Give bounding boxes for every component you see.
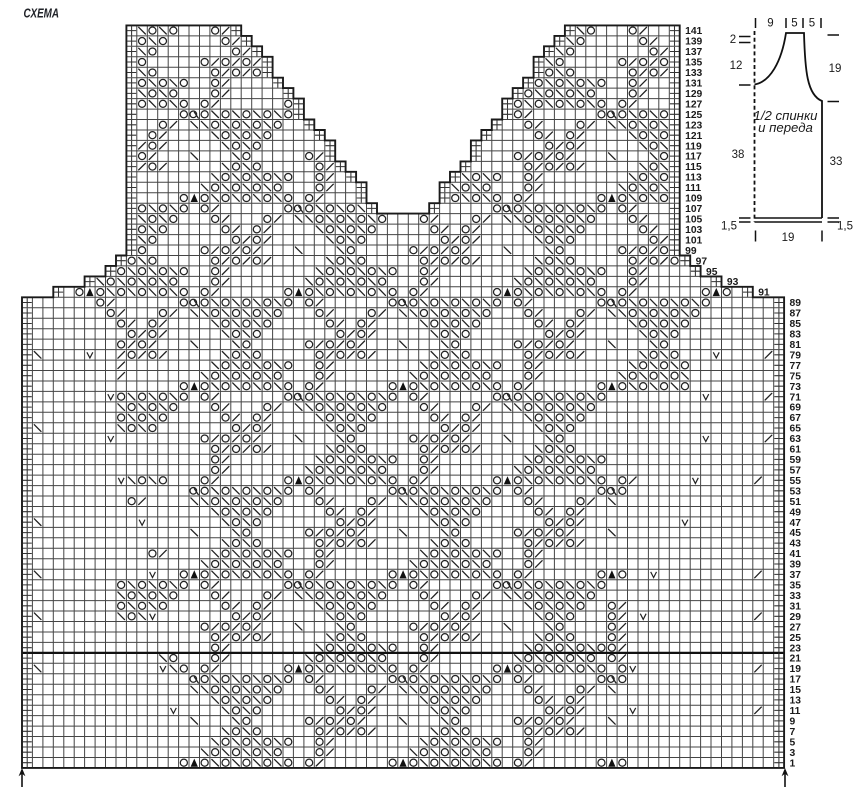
svg-text:99: 99 <box>685 246 697 257</box>
svg-text:79: 79 <box>790 350 802 361</box>
svg-text:75: 75 <box>790 371 802 382</box>
svg-text:38: 38 <box>732 149 745 161</box>
svg-text:85: 85 <box>790 319 802 330</box>
svg-text:109: 109 <box>685 194 702 205</box>
svg-text:35: 35 <box>790 581 802 592</box>
svg-text:23: 23 <box>790 643 802 654</box>
svg-text:63: 63 <box>790 434 802 445</box>
svg-text:131: 131 <box>685 79 702 90</box>
svg-text:19: 19 <box>790 664 802 675</box>
svg-text:73: 73 <box>790 382 802 393</box>
svg-text:113: 113 <box>685 173 702 184</box>
svg-text:137: 137 <box>685 47 702 58</box>
svg-text:21: 21 <box>790 654 802 665</box>
svg-text:71: 71 <box>790 392 802 403</box>
svg-text:12: 12 <box>730 60 743 72</box>
svg-text:61: 61 <box>790 445 802 456</box>
svg-text:15: 15 <box>790 685 802 696</box>
svg-text:83: 83 <box>790 330 802 341</box>
svg-text:105: 105 <box>685 215 702 226</box>
svg-text:65: 65 <box>790 424 802 435</box>
svg-text:123: 123 <box>685 120 702 131</box>
svg-text:87: 87 <box>790 309 802 320</box>
svg-text:СХЕМА: СХЕМА <box>24 6 60 20</box>
svg-text:37: 37 <box>790 570 802 581</box>
svg-text:31: 31 <box>790 601 802 612</box>
svg-text:43: 43 <box>790 539 802 550</box>
svg-text:9: 9 <box>790 717 796 728</box>
svg-text:81: 81 <box>790 340 802 351</box>
svg-text:103: 103 <box>685 225 702 236</box>
svg-text:33: 33 <box>830 156 843 168</box>
svg-text:25: 25 <box>790 633 802 644</box>
svg-text:19: 19 <box>829 63 842 75</box>
svg-text:47: 47 <box>790 518 802 529</box>
svg-text:139: 139 <box>685 37 702 48</box>
svg-text:133: 133 <box>685 68 702 79</box>
svg-text:3: 3 <box>790 748 796 759</box>
svg-text:129: 129 <box>685 89 702 100</box>
svg-text:и переда: и переда <box>758 120 813 135</box>
svg-text:39: 39 <box>790 560 802 571</box>
svg-text:91: 91 <box>758 288 770 299</box>
svg-text:115: 115 <box>685 162 702 173</box>
svg-text:29: 29 <box>790 612 802 623</box>
svg-text:7: 7 <box>790 727 796 738</box>
svg-text:45: 45 <box>790 528 802 539</box>
svg-text:11: 11 <box>790 706 801 717</box>
svg-text:51: 51 <box>790 497 802 508</box>
svg-text:5: 5 <box>791 18 797 30</box>
svg-text:49: 49 <box>790 507 802 518</box>
svg-text:89: 89 <box>790 298 802 309</box>
svg-text:53: 53 <box>790 486 802 497</box>
svg-text:59: 59 <box>790 455 802 466</box>
svg-text:5: 5 <box>790 737 796 748</box>
svg-text:135: 135 <box>685 58 702 69</box>
svg-text:57: 57 <box>790 466 802 477</box>
svg-text:17: 17 <box>790 675 802 686</box>
svg-text:13: 13 <box>790 696 802 707</box>
svg-text:67: 67 <box>790 413 802 424</box>
svg-text:125: 125 <box>685 110 702 121</box>
svg-text:19: 19 <box>782 232 795 244</box>
svg-text:127: 127 <box>685 99 702 110</box>
svg-text:2: 2 <box>730 34 736 46</box>
svg-text:1,5: 1,5 <box>721 221 737 233</box>
svg-text:119: 119 <box>685 141 702 152</box>
svg-text:69: 69 <box>790 403 802 414</box>
svg-text:121: 121 <box>685 131 702 142</box>
svg-text:1: 1 <box>790 758 796 769</box>
svg-text:111: 111 <box>685 183 701 194</box>
svg-text:1,5: 1,5 <box>837 221 853 233</box>
svg-text:41: 41 <box>790 549 802 560</box>
svg-text:101: 101 <box>685 235 702 246</box>
svg-text:55: 55 <box>790 476 802 487</box>
svg-text:97: 97 <box>696 256 708 267</box>
svg-text:107: 107 <box>685 204 702 215</box>
svg-text:117: 117 <box>685 152 702 163</box>
svg-text:27: 27 <box>790 622 802 633</box>
svg-text:5: 5 <box>809 18 815 30</box>
svg-text:9: 9 <box>767 18 773 30</box>
svg-text:141: 141 <box>685 26 702 37</box>
svg-text:93: 93 <box>727 277 739 288</box>
svg-text:77: 77 <box>790 361 802 372</box>
svg-text:33: 33 <box>790 591 802 602</box>
svg-text:95: 95 <box>706 267 718 278</box>
